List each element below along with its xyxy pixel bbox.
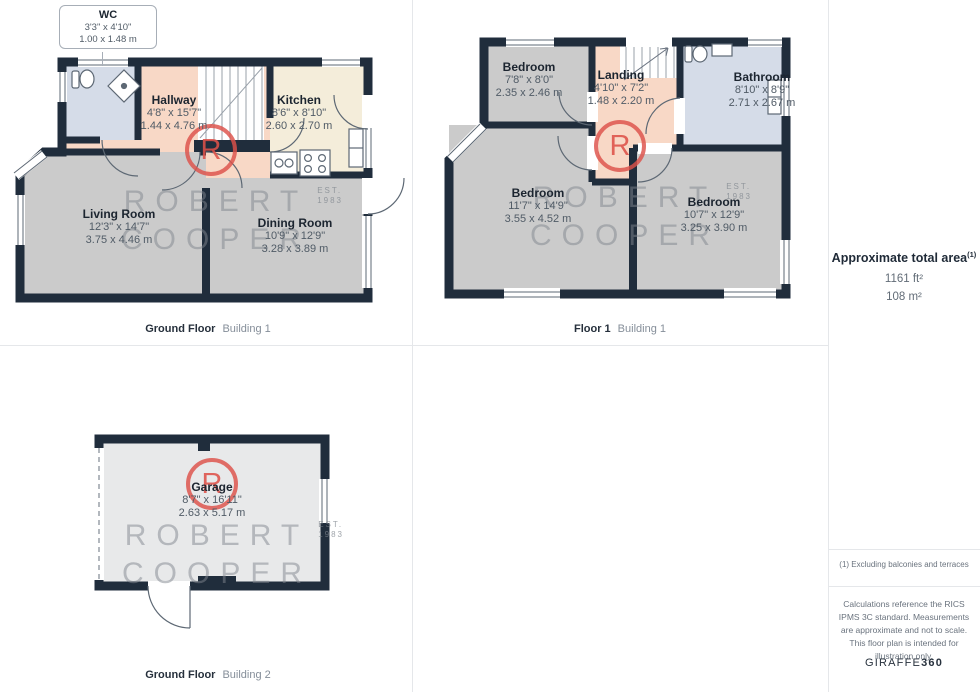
total-area-ft: 1161 ft²	[828, 270, 980, 288]
panel-ground-floor-b1: R ROBERT COOPER EST.1983 WC 3'3" x 4'10"…	[0, 0, 412, 345]
panel-floor1-b1: R ROBERT COOPER EST.1983 Bedroom 7'8" x …	[412, 0, 828, 345]
room-label-hallway: Hallway 4'8" x 15'7" 1.44 x 4.76 m	[141, 93, 208, 133]
ground-floor-b1-plan	[0, 0, 412, 345]
divider	[828, 586, 980, 587]
panel-ground-floor-b2: R ROBERT COOPER EST.1983 Garage 8'7" x 1…	[0, 345, 412, 692]
room-label-bedroom-1: Bedroom 7'8" x 8'0" 2.35 x 2.46 m	[496, 60, 563, 100]
total-area-block: Approximate total area(1) 1161 ft² 108 m…	[828, 247, 980, 306]
window	[319, 479, 330, 523]
caption-floor1-b1: Floor 1Building 1	[574, 323, 666, 335]
horizontal-divider	[0, 345, 828, 346]
callout-pointer	[102, 52, 103, 66]
room-label-garage: Garage 8'7" x 16'11" 2.63 x 5.17 m	[179, 480, 246, 520]
vertical-divider	[412, 0, 413, 692]
room-label-landing: Landing 4'10" x 7'2" 1.48 x 2.20 m	[588, 68, 655, 108]
room-label-bedroom-3: Bedroom 10'7" x 12'9" 3.25 x 3.90 m	[681, 195, 748, 235]
total-area-label: Approximate total area(1)	[828, 247, 980, 266]
floor1-b1-plan	[412, 0, 828, 345]
caption-ground-floor-b1: Ground FloorBuilding 1	[145, 323, 271, 335]
footnote: (1) Excluding balconies and terraces	[832, 559, 976, 570]
toilet-icon	[685, 46, 692, 62]
room-label-kitchen: Kitchen 8'6" x 8'10" 2.60 x 2.70 m	[266, 93, 333, 133]
room-label-dining-room: Dining Room 10'9" x 12'9" 3.28 x 3.89 m	[258, 216, 333, 256]
toilet-icon	[72, 71, 79, 88]
info-sidebar: Approximate total area(1) 1161 ft² 108 m…	[828, 0, 980, 692]
wc-callout: WC 3'3" x 4'10" 1.00 x 1.48 m	[59, 5, 157, 49]
floorplan-page: R ROBERT COOPER EST.1983 WC 3'3" x 4'10"…	[0, 0, 980, 692]
room-label-bathroom: Bathroom 8'10" x 8'9" 2.71 x 2.67 m	[729, 70, 796, 110]
giraffe360-logo: GIRAFFE360	[828, 657, 980, 669]
caption-ground-floor-b2: Ground FloorBuilding 2	[145, 669, 271, 681]
toilet-icon	[693, 46, 707, 62]
legal-text: Calculations reference the RICS IPMS 3C …	[837, 598, 971, 663]
room-label-living-room: Living Room 12'3" x 14'7" 3.75 x 4.46 m	[83, 207, 156, 247]
vertical-divider	[828, 0, 829, 692]
divider	[828, 549, 980, 550]
toilet-icon	[80, 70, 94, 88]
sink-icon	[712, 44, 732, 56]
door-arc	[148, 586, 190, 628]
stove-icon	[300, 150, 330, 176]
room-label-bedroom-2: Bedroom 11'7" x 14'9" 3.55 x 4.52 m	[505, 186, 572, 226]
total-area-m: 108 m²	[828, 288, 980, 306]
window	[626, 36, 672, 47]
